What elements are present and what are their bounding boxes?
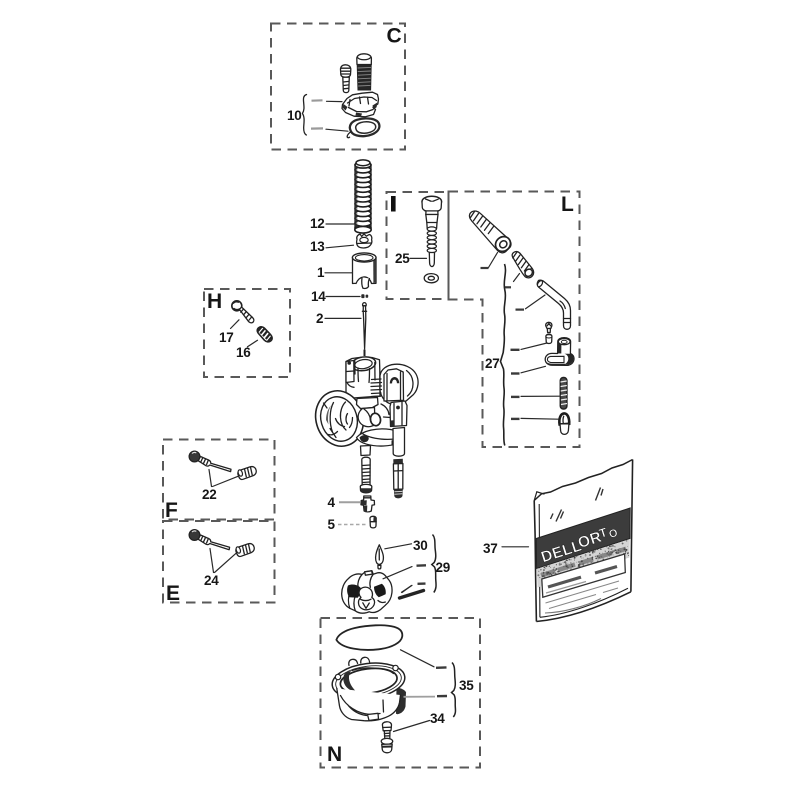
svg-text:L: L (561, 193, 574, 216)
svg-text:N: N (327, 743, 342, 766)
svg-text:F: F (165, 499, 178, 522)
svg-text:H: H (207, 290, 222, 313)
svg-text:24: 24 (204, 573, 219, 588)
svg-text:2: 2 (316, 311, 323, 326)
svg-text:16: 16 (236, 345, 251, 360)
svg-text:25: 25 (395, 251, 410, 266)
svg-text:5: 5 (328, 517, 336, 532)
svg-text:22: 22 (202, 487, 216, 502)
svg-text:1: 1 (317, 265, 325, 280)
svg-text:4: 4 (328, 495, 336, 510)
svg-text:13: 13 (310, 239, 325, 254)
svg-text:17: 17 (219, 330, 233, 345)
svg-text:E: E (166, 582, 180, 605)
svg-text:30: 30 (413, 538, 427, 553)
svg-text:29: 29 (436, 560, 450, 575)
svg-text:10: 10 (287, 108, 301, 123)
svg-text:14: 14 (311, 289, 326, 304)
svg-text:27: 27 (485, 356, 499, 371)
svg-text:12: 12 (310, 216, 324, 231)
svg-text:C: C (387, 25, 402, 48)
svg-text:37: 37 (483, 541, 497, 556)
svg-text:34: 34 (430, 711, 445, 726)
svg-text:35: 35 (459, 678, 474, 693)
